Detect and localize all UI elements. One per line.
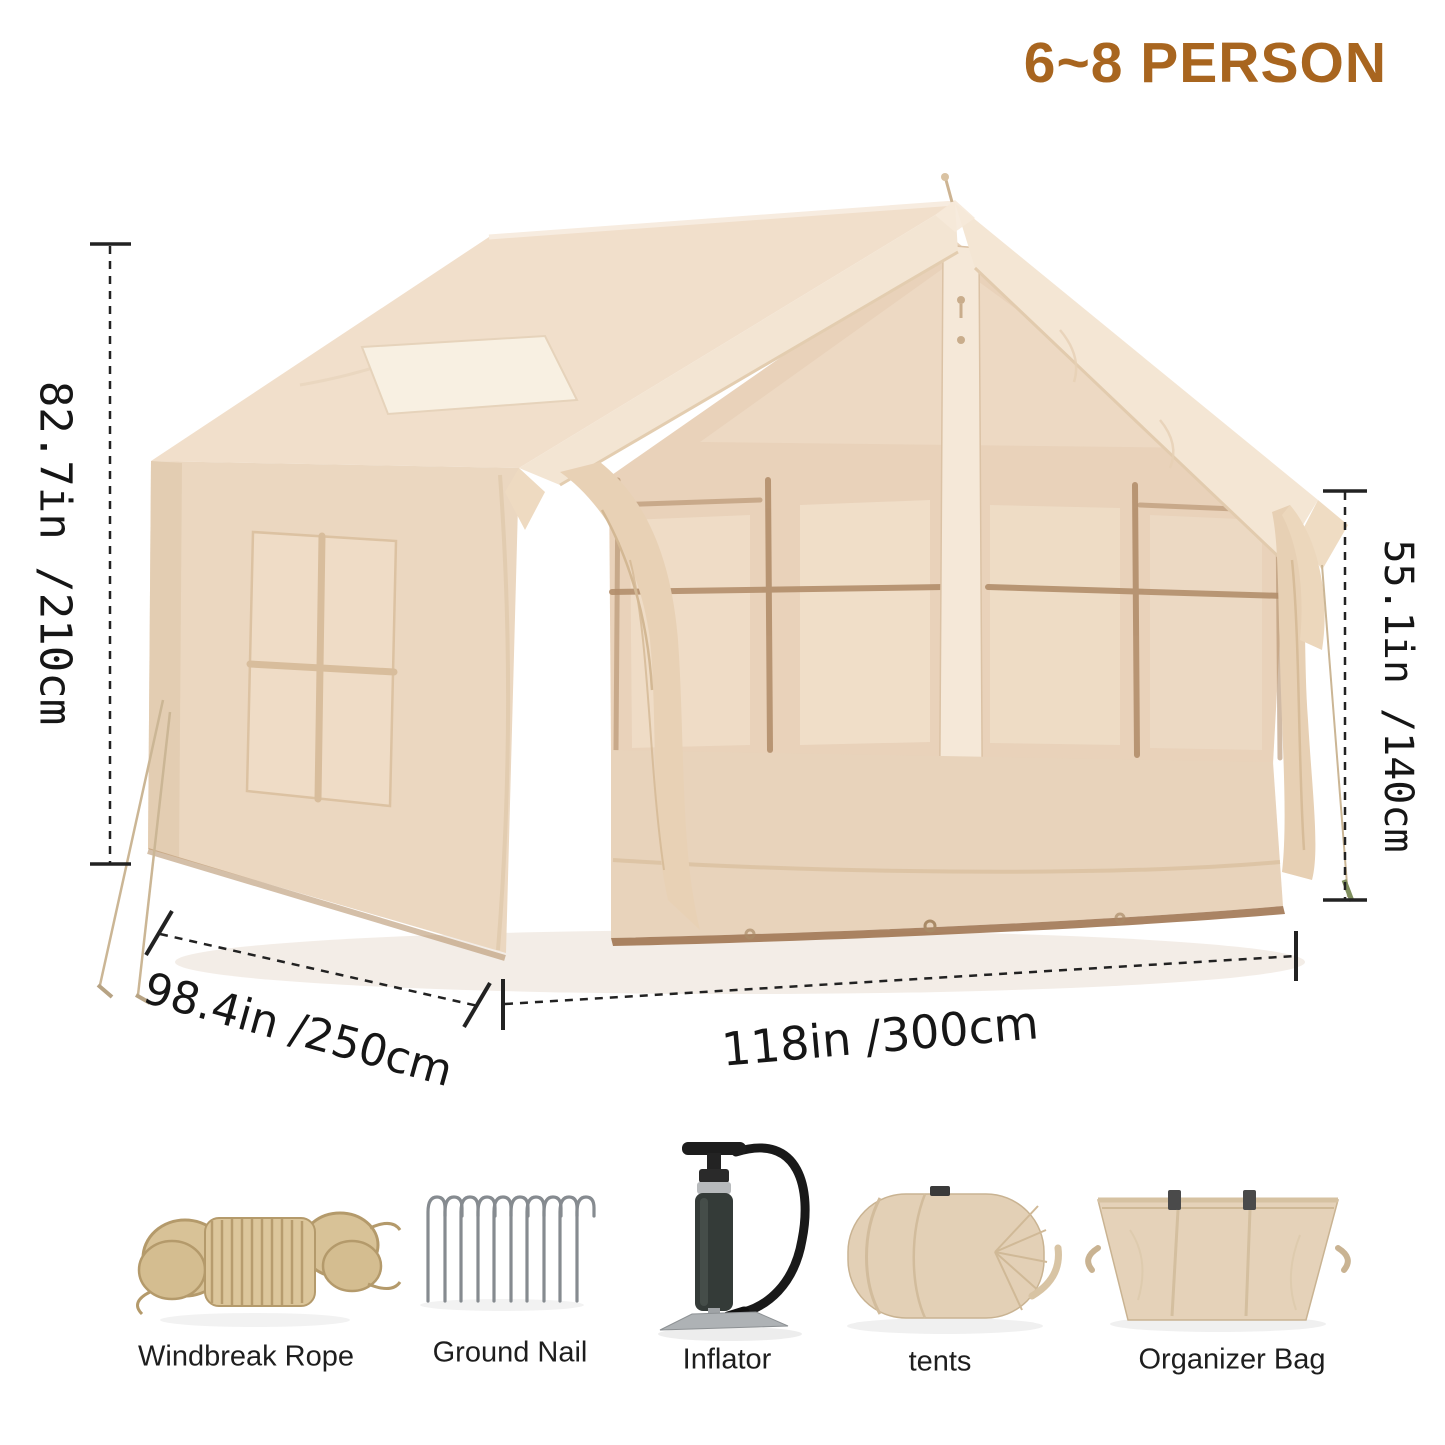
wall-height-dimension-label: 55.1in /140cm: [1375, 539, 1421, 852]
capacity-label: 6~8 PERSON: [1024, 30, 1387, 96]
tent-bag-icon: [847, 1186, 1058, 1334]
air-pump-icon: [658, 1142, 805, 1341]
tent-skirt: [611, 750, 1285, 946]
accessory-label-inflator: Inflator: [683, 1344, 772, 1377]
skylight-window: [362, 336, 577, 414]
tent-stakes-icon: [420, 1197, 594, 1311]
rope-coil-icon: [138, 1213, 401, 1327]
accessories-row: [138, 1142, 1348, 1341]
product-infographic: 6~8 PERSON 82.7in /210cm 55.1in /140cm 9…: [0, 0, 1445, 1445]
organizer-bag-icon: [1088, 1190, 1348, 1332]
guy-rope-right: [1322, 565, 1352, 901]
height-total-dimension-label: 82.7in /210cm: [30, 381, 81, 725]
height-total-dimension-line: [90, 244, 131, 864]
tent-illustration: [98, 173, 1352, 1003]
infographic-graphics: [0, 0, 1445, 1445]
accessory-label-organizer-bag: Organizer Bag: [1139, 1344, 1326, 1377]
accessory-label-ground-nail: Ground Nail: [433, 1337, 588, 1370]
accessory-label-tents: tents: [909, 1346, 972, 1379]
side-window: [247, 532, 396, 806]
accessory-label-windbreak-rope: Windbreak Rope: [138, 1341, 354, 1374]
